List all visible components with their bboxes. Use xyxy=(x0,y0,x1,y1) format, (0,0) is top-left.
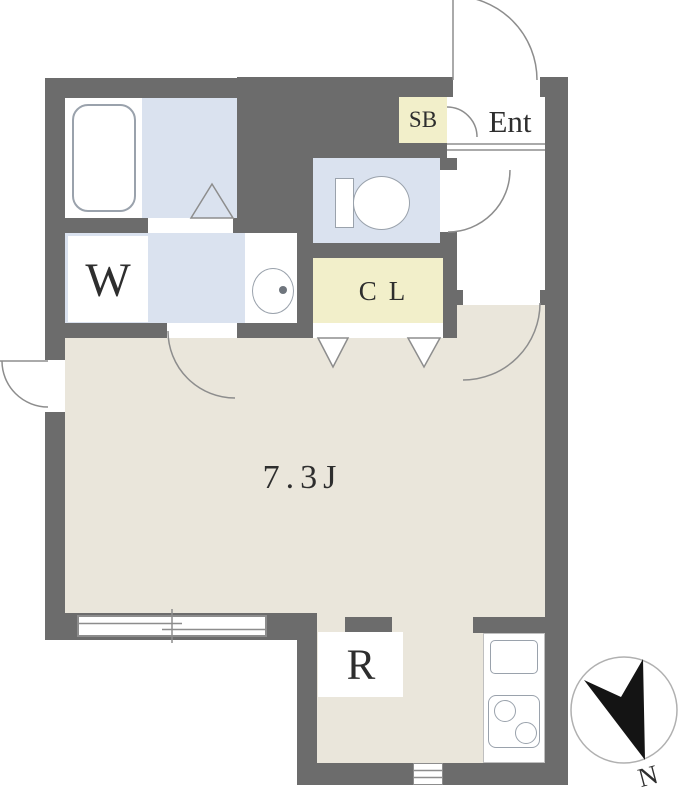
toilet-door-swing-arc xyxy=(448,170,510,232)
closet-folding-door-icon xyxy=(408,338,440,367)
entrance-door-swing-arc xyxy=(453,0,537,80)
refrigerator-label: R xyxy=(320,636,402,694)
side-door-swing-arc xyxy=(2,361,48,407)
washer-label: W xyxy=(68,238,148,322)
closet-folding-door-icon xyxy=(318,338,348,367)
hall-door-swing-arc xyxy=(463,303,540,380)
closet-label: CL xyxy=(322,270,442,312)
washroom-door-swing-arc xyxy=(168,331,235,398)
bathroom-folding-door-icon xyxy=(191,184,233,218)
main-room-size-label: 7.3J xyxy=(230,450,375,505)
entrance-label: Ent xyxy=(470,103,550,141)
floor-plan: SB Ent CL W 7.3J R N xyxy=(0,0,684,800)
shoe-box-label: SB xyxy=(399,99,447,141)
